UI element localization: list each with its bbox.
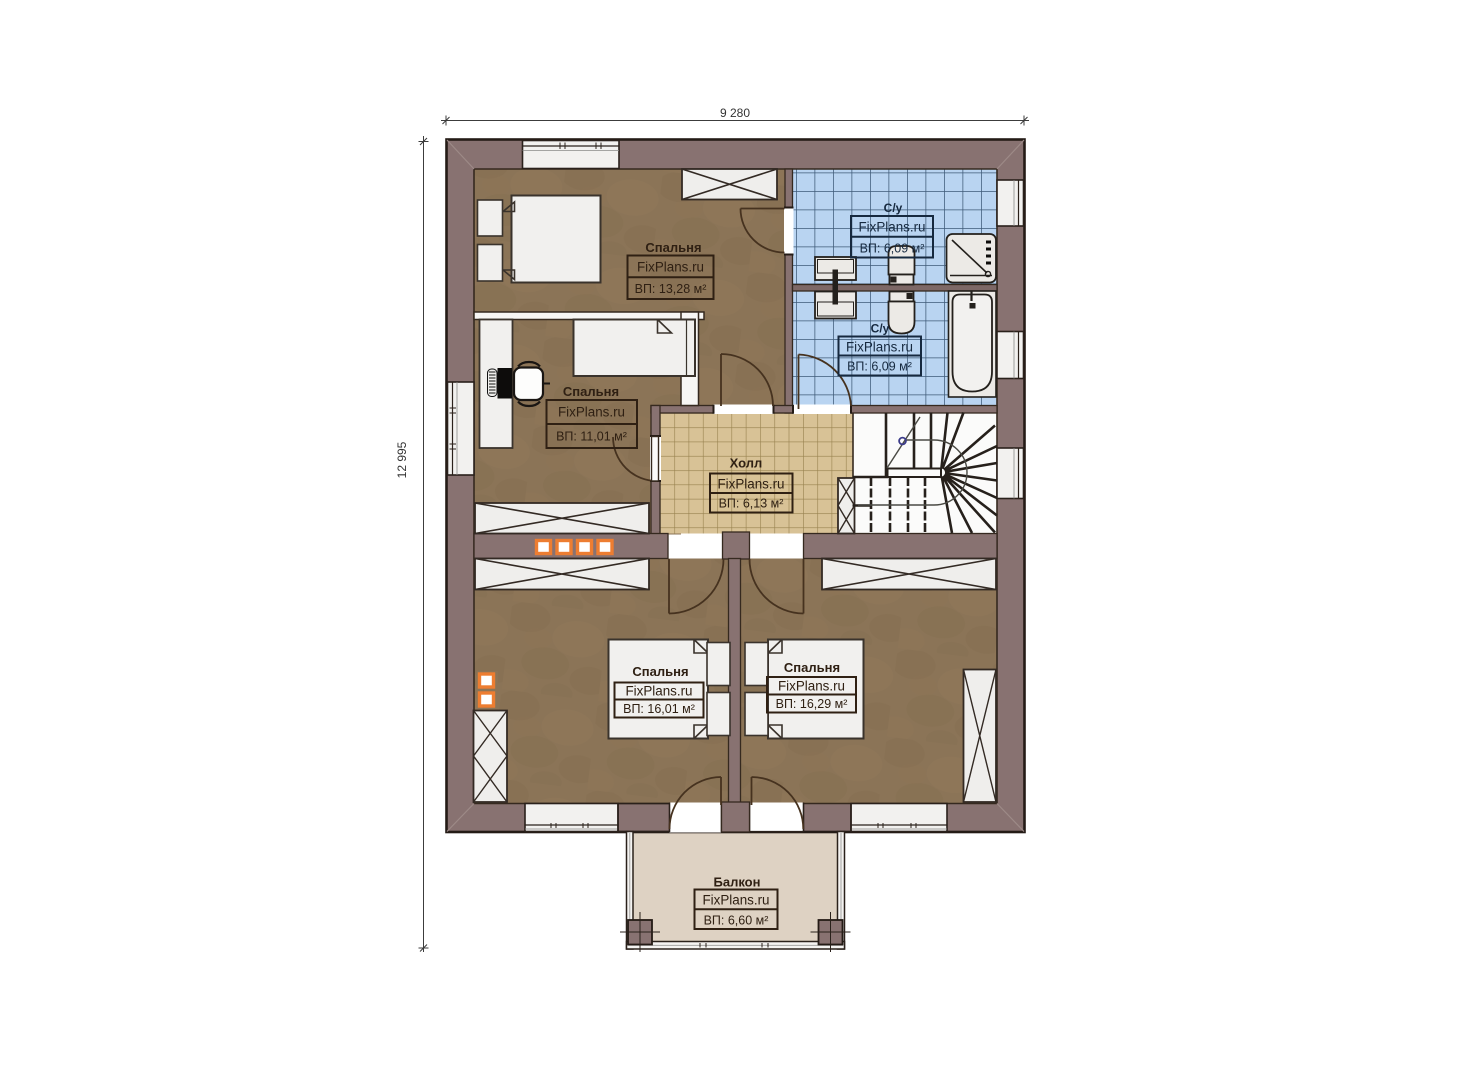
- svg-text:С/у: С/у: [871, 322, 890, 336]
- svg-text:С/у: С/у: [884, 201, 903, 215]
- svg-text:12 995: 12 995: [395, 441, 409, 478]
- svg-text:9 280: 9 280: [720, 106, 750, 120]
- svg-text:Спальня: Спальня: [784, 660, 840, 675]
- svg-text:ВП: 16,01 м²: ВП: 16,01 м²: [623, 702, 695, 716]
- svg-text:FixPlans.ru: FixPlans.ru: [778, 679, 845, 694]
- svg-text:ВП: 16,29 м²: ВП: 16,29 м²: [776, 697, 848, 711]
- svg-text:Спальня: Спальня: [563, 384, 619, 399]
- svg-text:Холл: Холл: [730, 456, 763, 471]
- svg-text:ВП: 6,13 м²: ВП: 6,13 м²: [719, 497, 784, 511]
- svg-text:FixPlans.ru: FixPlans.ru: [637, 260, 704, 275]
- svg-text:Спальня: Спальня: [632, 664, 688, 679]
- svg-text:FixPlans.ru: FixPlans.ru: [718, 477, 785, 492]
- svg-text:ВП: 6,09 м²: ВП: 6,09 м²: [847, 360, 912, 374]
- svg-text:ВП: 6,60 м²: ВП: 6,60 м²: [704, 914, 769, 928]
- svg-text:FixPlans.ru: FixPlans.ru: [558, 405, 625, 420]
- svg-text:FixPlans.ru: FixPlans.ru: [703, 893, 770, 908]
- svg-text:FixPlans.ru: FixPlans.ru: [859, 220, 926, 235]
- svg-text:FixPlans.ru: FixPlans.ru: [626, 684, 693, 699]
- svg-text:ВП: 13,28 м²: ВП: 13,28 м²: [635, 282, 707, 296]
- svg-text:ВП: 6,09 м²: ВП: 6,09 м²: [860, 242, 925, 256]
- svg-text:FixPlans.ru: FixPlans.ru: [846, 340, 913, 355]
- svg-text:Спальня: Спальня: [645, 240, 701, 255]
- svg-text:ВП: 11,01 м²: ВП: 11,01 м²: [556, 430, 627, 444]
- svg-text:Балкон: Балкон: [714, 875, 761, 890]
